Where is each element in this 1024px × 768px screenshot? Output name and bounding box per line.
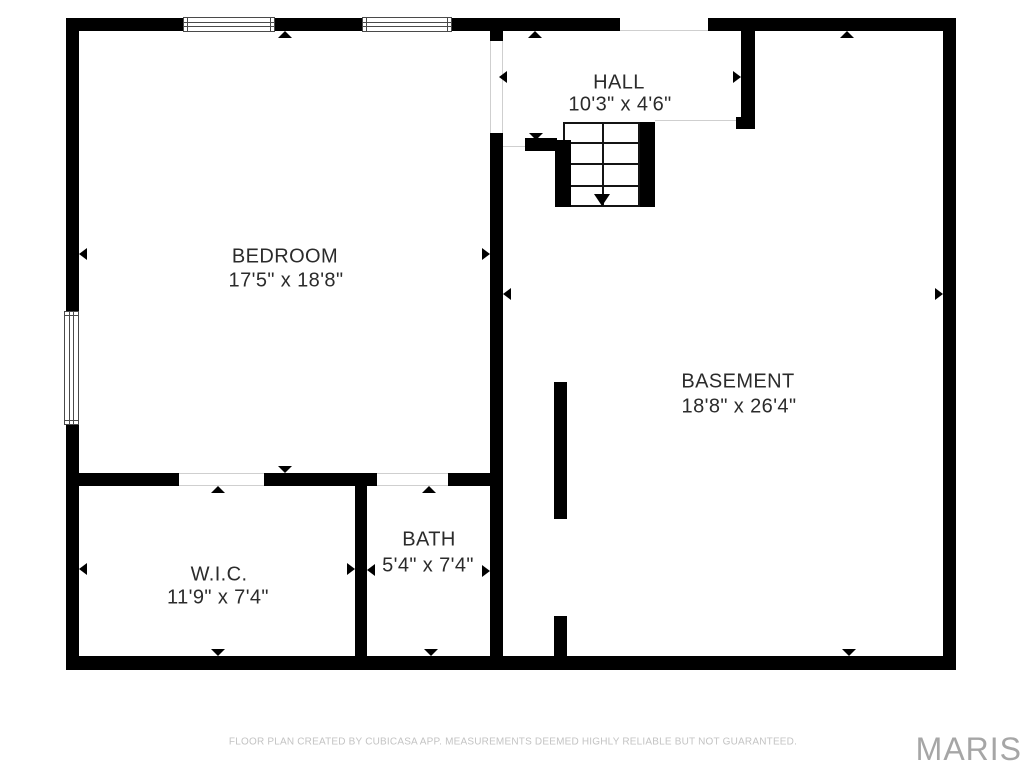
hall-door-edge-left: [490, 40, 491, 133]
basement-partial-wall-lower: [554, 616, 567, 670]
basement-partial-wall-upper: [554, 382, 567, 519]
maris-watermark: MARIS: [916, 731, 1022, 768]
bedroom-span-arrow-top: [278, 31, 292, 38]
hall-west-boundary: [503, 146, 526, 147]
hall-door-edge-right: [502, 40, 503, 133]
bedroom-span-arrow-bottom: [278, 466, 292, 473]
window-top-1-pane-line-2: [184, 26, 274, 27]
hall-span-arrow-bottom: [529, 133, 543, 140]
window-left-pane-line-1: [69, 312, 70, 424]
basement-span-arrow-top: [840, 31, 854, 38]
window-top-2: [362, 17, 452, 32]
wic-span-arrow-left: [79, 563, 87, 575]
room-label-bedroom: BEDROOM: [232, 246, 338, 269]
room-label-wic: W.I.C.: [191, 564, 248, 587]
window-top-1-cap-1: [187, 18, 188, 31]
room-dimensions-hall: 10'3" x 4'6": [568, 94, 671, 117]
top-wall-opening-line: [620, 30, 708, 31]
basement-span-arrow-left: [503, 288, 511, 300]
stair-left-bar: [555, 140, 571, 207]
room-label-hall: HALL: [593, 72, 645, 95]
window-top-2-pane-line-1: [363, 22, 451, 23]
outer-wall-left-upper: [66, 18, 79, 311]
outer-wall-right: [943, 18, 956, 670]
basement-span-arrow-bottom: [842, 649, 856, 656]
window-left: [64, 311, 79, 425]
bath-span-arrow-top: [422, 486, 436, 493]
hall-south-boundary: [655, 120, 737, 121]
outer-wall-top-right-segment: [708, 18, 956, 31]
bath-top-wall-east: [448, 473, 490, 486]
wic-top-wall-west: [79, 473, 179, 486]
hall-right-wall: [741, 31, 755, 118]
staircase-direction-arrow: [594, 194, 610, 206]
wic-bath-divider-wall: [355, 473, 367, 670]
window-top-1-cap-2: [270, 18, 271, 31]
hall-right-wall-foot: [736, 117, 755, 129]
bath-span-arrow-right: [482, 565, 490, 577]
outer-wall-top-left-segment: [66, 18, 620, 31]
window-top-2-cap-1: [366, 18, 367, 31]
hall-span-arrow-left: [499, 71, 507, 83]
outer-wall-bottom: [66, 656, 956, 670]
wic-span-arrow-right: [347, 563, 355, 575]
window-top-2-pane-line-2: [363, 26, 451, 27]
bedroom-span-arrow-left: [79, 248, 87, 260]
bath-span-arrow-bottom: [424, 649, 438, 656]
outer-wall-left-lower: [66, 425, 79, 670]
bath-span-arrow-left: [367, 564, 375, 576]
hall-left-wall-stub: [490, 31, 503, 41]
window-top-1: [183, 17, 275, 32]
window-top-1-pane-line-1: [184, 22, 274, 23]
room-dimensions-basement: 18'8" x 26'4": [682, 396, 797, 419]
window-left-cap-1: [65, 315, 78, 316]
window-top-2-cap-2: [447, 18, 448, 31]
wic-span-arrow-top: [211, 486, 225, 493]
room-dimensions-wic: 11'9" x 7'4": [167, 587, 269, 610]
footer-disclaimer: FLOOR PLAN CREATED BY CUBICASA APP. MEAS…: [229, 737, 797, 748]
room-label-basement: BASEMENT: [681, 371, 794, 394]
room-dimensions-bedroom: 17'5" x 18'8": [229, 270, 344, 293]
window-left-pane-line-2: [73, 312, 74, 424]
bedroom-span-arrow-right: [482, 248, 490, 260]
hall-span-arrow-top: [528, 31, 542, 38]
wic-span-arrow-bottom: [211, 649, 225, 656]
hall-span-arrow-right: [733, 71, 741, 83]
window-left-cap-2: [65, 420, 78, 421]
basement-span-arrow-right: [935, 288, 943, 300]
floorplan-basement-level: FLOOR PLAN CREATED BY CUBICASA APP. MEAS…: [0, 0, 1024, 768]
bath-door-edge-top: [377, 473, 448, 474]
room-dimensions-bath: 5'4" x 7'4": [382, 555, 474, 578]
stair-right-bar: [640, 122, 655, 207]
wic-door-edge-top: [179, 473, 264, 474]
room-label-bath: BATH: [402, 529, 455, 552]
bedroom-basement-divider: [490, 133, 503, 656]
bath-door-edge-bottom: [377, 485, 448, 486]
